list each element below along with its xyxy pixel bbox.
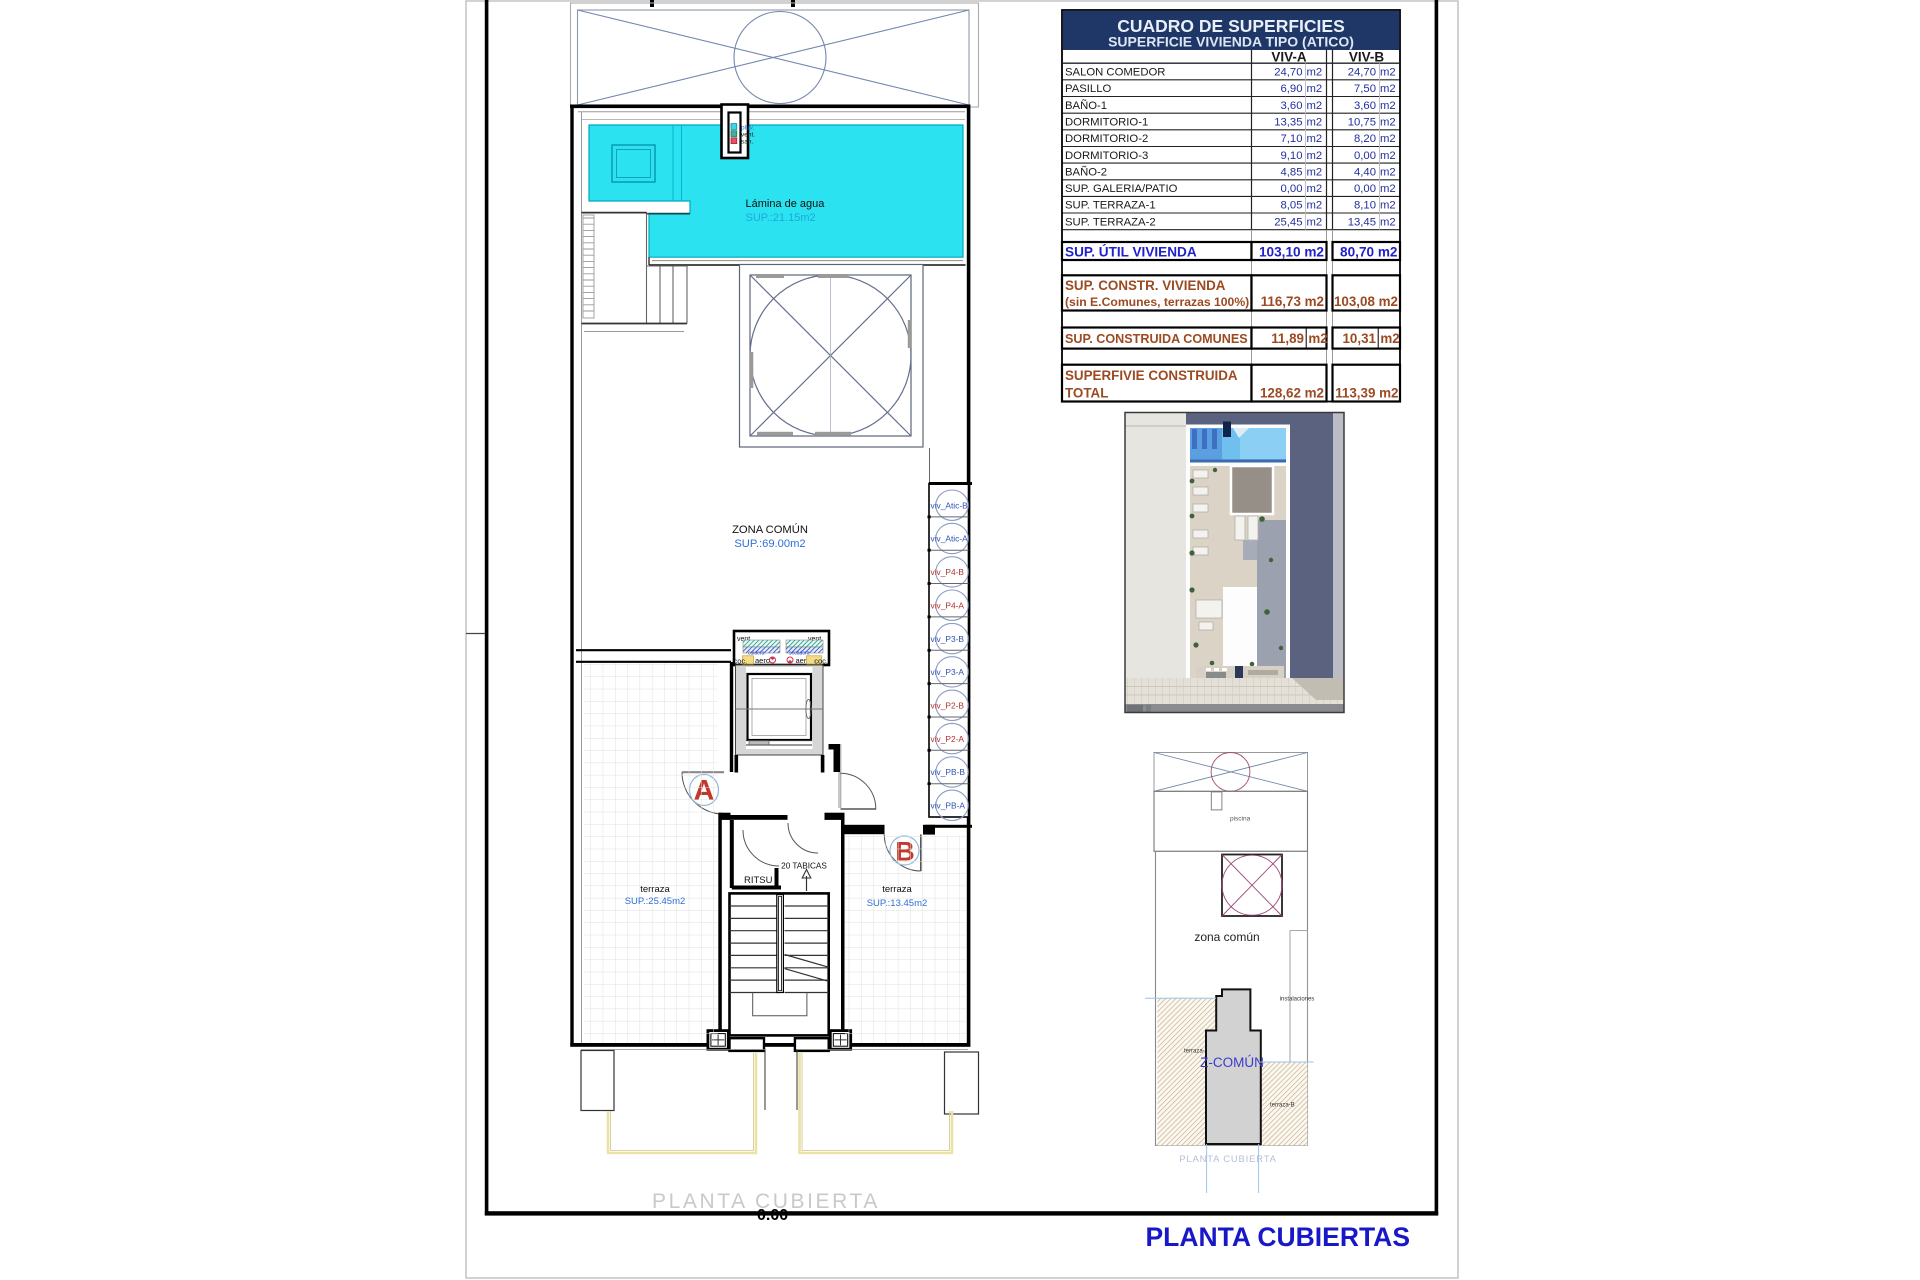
svg-text:0,00: 0,00 — [1354, 150, 1376, 162]
svg-text:m2: m2 — [1380, 67, 1396, 79]
svg-text:ZONA COMÚN: ZONA COMÚN — [732, 523, 808, 536]
svg-text:SUP.:69.00m2: SUP.:69.00m2 — [734, 538, 805, 550]
svg-text:25,45: 25,45 — [1274, 216, 1302, 228]
svg-text:SUPERFIVIE CONSTRUIDA: SUPERFIVIE CONSTRUIDA — [1065, 368, 1238, 383]
svg-text:m2: m2 — [1380, 133, 1396, 145]
svg-text:VIV-A: VIV-A — [1271, 50, 1307, 65]
svg-text:m2: m2 — [1307, 183, 1323, 195]
svg-text:m2: m2 — [1380, 331, 1399, 346]
svg-text:SUP. TERRAZA-2: SUP. TERRAZA-2 — [1065, 216, 1156, 228]
svg-text:9,10: 9,10 — [1281, 150, 1303, 162]
svg-text:RITSU: RITSU — [744, 875, 773, 886]
svg-text:BAÑO-2: BAÑO-2 — [1065, 165, 1107, 178]
svg-text:SUP. TERRAZA-1: SUP. TERRAZA-1 — [1065, 200, 1156, 212]
svg-text:m2: m2 — [1380, 83, 1396, 95]
svg-text:SUP. CONSTRUIDA COMUNES: SUP. CONSTRUIDA COMUNES — [1065, 332, 1248, 346]
svg-text:viv_PB-A: viv_PB-A — [931, 801, 966, 811]
svg-text:m2: m2 — [1380, 166, 1396, 178]
svg-text:PLANTA CUBIERTA: PLANTA CUBIERTA — [1179, 1154, 1277, 1165]
svg-text:SUP. GALERIA/PATIO: SUP. GALERIA/PATIO — [1065, 183, 1178, 195]
svg-text:m2: m2 — [1308, 331, 1327, 346]
svg-text:viv_P3-A: viv_P3-A — [931, 667, 965, 677]
svg-text:viv_P3-B: viv_P3-B — [931, 634, 965, 644]
svg-text:coc.: coc. — [734, 657, 748, 666]
svg-text:pluv.: pluv. — [741, 125, 754, 132]
svg-text:SUPERFICIE VIVIENDA TIPO (ATI: SUPERFICIE VIVIENDA TIPO (ATICO) — [1108, 34, 1354, 50]
svg-text:4,40: 4,40 — [1354, 166, 1376, 178]
svg-text:11,89: 11,89 — [1271, 331, 1304, 346]
svg-text:(sin E.Comunes, terrazas 100%): (sin E.Comunes, terrazas 100%) — [1065, 295, 1249, 309]
svg-text:viv_Atic-B: viv_Atic-B — [931, 500, 969, 510]
svg-text:viv_Atic-A: viv_Atic-A — [931, 534, 969, 544]
svg-text:DORMITORIO-2: DORMITORIO-2 — [1065, 133, 1148, 145]
svg-text:SALON COMEDOR: SALON COMEDOR — [1065, 67, 1165, 79]
svg-text:m2: m2 — [1380, 183, 1396, 195]
svg-text:7,10: 7,10 — [1281, 133, 1303, 145]
svg-text:24,70: 24,70 — [1348, 67, 1376, 79]
svg-text:aero: aero — [755, 656, 770, 665]
svg-text:PASILLO: PASILLO — [1065, 83, 1111, 95]
svg-text:DORMITORIO-3: DORMITORIO-3 — [1065, 150, 1148, 162]
svg-text:viv_P2-B: viv_P2-B — [931, 701, 965, 711]
svg-text:m2: m2 — [1307, 166, 1323, 178]
svg-text:10,31: 10,31 — [1342, 331, 1376, 346]
svg-text:10,75: 10,75 — [1348, 117, 1376, 129]
svg-text:13,35: 13,35 — [1274, 117, 1302, 129]
svg-text:3,60: 3,60 — [1281, 100, 1303, 112]
svg-text:m2: m2 — [1307, 67, 1323, 79]
svg-text:6,90: 6,90 — [1281, 83, 1303, 95]
svg-text:m2: m2 — [1307, 216, 1323, 228]
svg-text:8,05: 8,05 — [1281, 200, 1303, 212]
svg-text:m2: m2 — [1380, 117, 1396, 129]
svg-text:m2: m2 — [1307, 200, 1323, 212]
svg-text:terraza-A: terraza-A — [1184, 1049, 1209, 1055]
svg-text:0,00: 0,00 — [1354, 183, 1376, 195]
svg-text:SUP.:25.45m2: SUP.:25.45m2 — [625, 896, 686, 907]
svg-text:m2: m2 — [1307, 133, 1323, 145]
svg-text:113,39 m2: 113,39 m2 — [1335, 385, 1398, 400]
svg-text:coc.: coc. — [814, 657, 828, 666]
svg-text:m2: m2 — [1307, 150, 1323, 162]
svg-text:m2: m2 — [1380, 150, 1396, 162]
svg-text:PLANTA CUBIERTA: PLANTA CUBIERTA — [652, 1190, 880, 1213]
svg-text:viv_PB-B: viv_PB-B — [931, 767, 966, 777]
svg-text:viv_P2-A: viv_P2-A — [931, 734, 965, 744]
svg-text:103,10 m2: 103,10 m2 — [1259, 244, 1324, 259]
svg-text:128,62 m2: 128,62 m2 — [1260, 385, 1324, 400]
svg-text:SUP.:21.15m2: SUP.:21.15m2 — [746, 212, 816, 224]
svg-text:Z-COMÚN: Z-COMÚN — [1200, 1055, 1264, 1070]
svg-text:terraza-B: terraza-B — [1270, 1103, 1295, 1109]
svg-text:terraza: terraza — [640, 884, 670, 895]
svg-text:80,70 m2: 80,70 m2 — [1340, 244, 1398, 259]
svg-text:m2: m2 — [1380, 100, 1396, 112]
svg-text:piscina: piscina — [1230, 816, 1251, 823]
svg-text:m2: m2 — [1307, 100, 1323, 112]
svg-text:Lámina de agua: Lámina de agua — [746, 198, 826, 210]
svg-text:vent.: vent. — [741, 132, 755, 139]
svg-text:viv_P4-A: viv_P4-A — [931, 600, 965, 610]
svg-text:PLANTA CUBIERTAS: PLANTA CUBIERTAS — [1146, 1222, 1411, 1252]
svg-text:m2: m2 — [1380, 216, 1396, 228]
svg-text:m2: m2 — [1380, 200, 1396, 212]
svg-text:VIV-B: VIV-B — [1349, 50, 1385, 65]
svg-text:116,73 m2: 116,73 m2 — [1261, 294, 1324, 309]
svg-text:103,08 m2: 103,08 m2 — [1334, 294, 1398, 309]
svg-text:8,10: 8,10 — [1354, 200, 1376, 212]
svg-text:DORMITORIO-1: DORMITORIO-1 — [1065, 117, 1148, 129]
svg-text:instalaciones: instalaciones — [1280, 997, 1315, 1003]
svg-text:SUP. CONSTR. VIVIENDA: SUP. CONSTR. VIVIENDA — [1065, 278, 1226, 293]
svg-text:BAÑO-1: BAÑO-1 — [1065, 99, 1107, 112]
svg-text:4,85: 4,85 — [1281, 166, 1303, 178]
svg-text:8,20: 8,20 — [1354, 133, 1376, 145]
svg-text:viv_P4-B: viv_P4-B — [931, 567, 965, 577]
svg-text:13,45: 13,45 — [1348, 216, 1376, 228]
svg-text:SUP. ÚTIL VIVIENDA: SUP. ÚTIL VIVIENDA — [1065, 244, 1197, 259]
svg-text:zona común: zona común — [1194, 930, 1259, 944]
svg-text:3,60: 3,60 — [1354, 100, 1376, 112]
svg-text:20 TABICAS: 20 TABICAS — [781, 862, 827, 871]
svg-text:san.: san. — [741, 139, 753, 146]
svg-text:TOTAL: TOTAL — [1065, 385, 1108, 400]
svg-text:terraza: terraza — [882, 884, 912, 895]
svg-text:m2: m2 — [1307, 117, 1323, 129]
svg-text:SUP.:13.45m2: SUP.:13.45m2 — [867, 898, 928, 909]
svg-text:m2: m2 — [1307, 83, 1323, 95]
svg-text:0,00: 0,00 — [1281, 183, 1303, 195]
svg-text:24,70: 24,70 — [1274, 67, 1302, 79]
svg-text:7,50: 7,50 — [1354, 83, 1376, 95]
